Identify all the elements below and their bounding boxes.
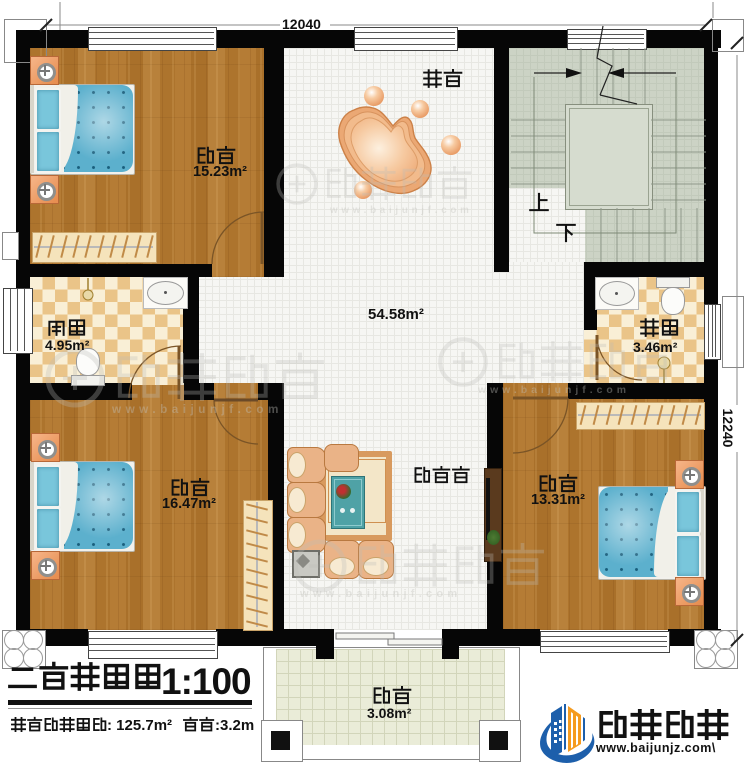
svg-text:www.baijunjf.com: www.baijunjf.com xyxy=(477,385,630,396)
svg-text:www.baijunjf.com: www.baijunjf.com xyxy=(299,588,462,600)
svg-text:www.baijunjf.com: www.baijunjf.com xyxy=(329,205,473,216)
svg-text:www.baijunjf.com: www.baijunjf.com xyxy=(111,403,283,416)
